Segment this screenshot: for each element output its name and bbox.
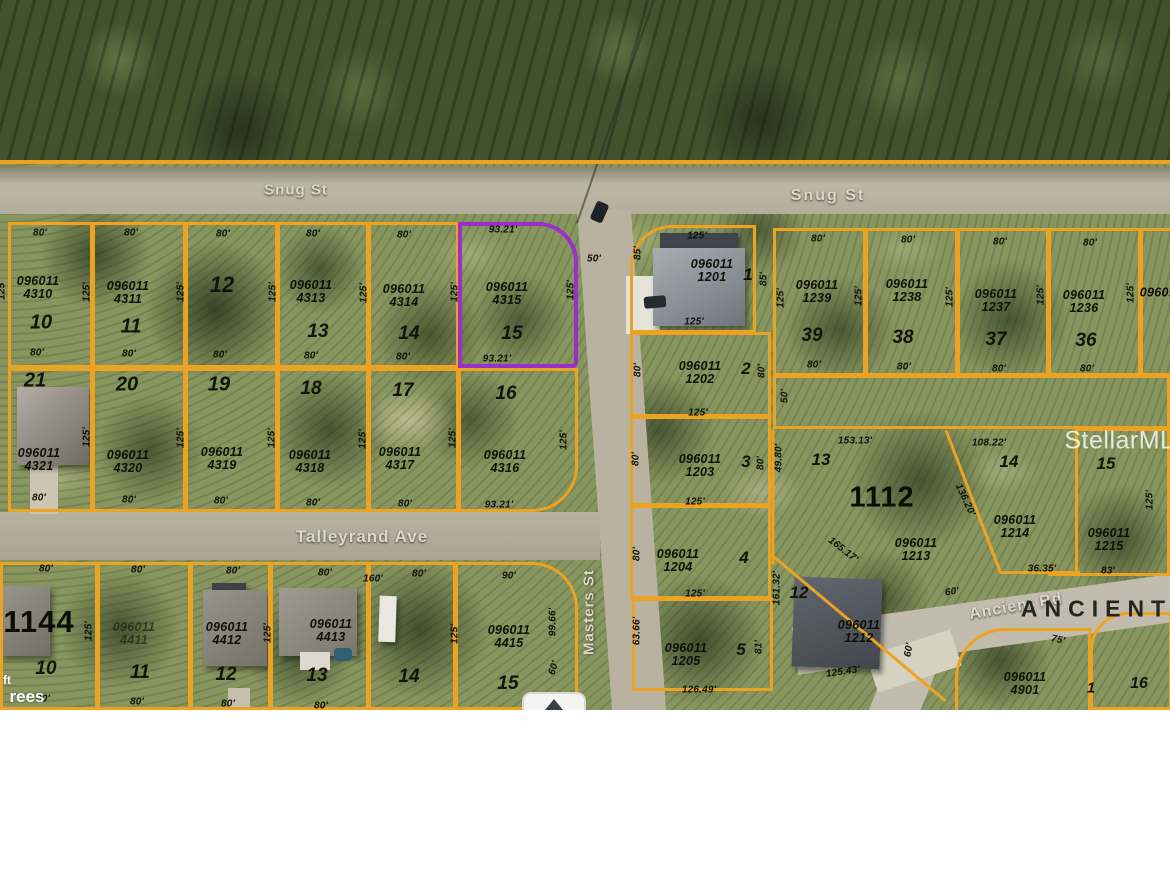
- dimension-label: 49.80': [774, 444, 785, 473]
- dimension-label: 80': [992, 364, 1006, 375]
- dimension-label: 93.21': [483, 354, 512, 365]
- parcel-id-label: 096011 1201: [691, 258, 734, 284]
- dimension-label: 80': [811, 234, 825, 245]
- dimension-label: 80': [216, 229, 230, 240]
- dimension-label: 80': [214, 496, 228, 507]
- lot-number-label: 11: [121, 316, 142, 339]
- lot-number-label: 15: [497, 673, 518, 695]
- lot-number-label: 15: [1097, 454, 1116, 474]
- dimension-label: 80': [39, 564, 53, 575]
- parcel-id-label: 096011 4315: [486, 281, 529, 307]
- dimension-label: 125': [0, 280, 8, 300]
- lot-number-label: 20: [116, 374, 138, 397]
- lot-number-label: 11: [130, 662, 150, 684]
- dimension-label: 125': [358, 429, 369, 449]
- street-name-label: Masters St: [581, 569, 598, 655]
- map-marker-icon: [522, 692, 586, 710]
- lot-number-label: 19: [208, 374, 230, 397]
- parcel-id-label: 096011 1213: [895, 537, 938, 563]
- parcel-id-label: 096011 1202: [679, 360, 722, 386]
- dimension-label: 125': [84, 621, 95, 641]
- dimension-label: 80': [130, 697, 144, 708]
- parcel-boundary: [630, 505, 771, 599]
- dimension-label: 93.21': [489, 225, 518, 236]
- lot-number-label: 13: [306, 665, 327, 687]
- parcel-id-label: 096011 1237: [975, 288, 1018, 314]
- clipped-edge-label: rees: [10, 687, 45, 707]
- lot-number-label: 16: [495, 383, 516, 405]
- dimension-label: 80': [756, 456, 767, 470]
- dimension-label: 125': [1126, 283, 1137, 303]
- dimension-label: 80': [30, 348, 44, 359]
- parcel-id-label: 096011 4321: [18, 447, 61, 473]
- parcel-id-label: 096011 1239: [796, 279, 839, 305]
- dimension-label: 80': [807, 360, 821, 371]
- parcel-id-label: 096011 4415: [488, 624, 531, 650]
- dimension-label: 80': [757, 364, 768, 378]
- lot-number-label: 13: [812, 450, 831, 470]
- stellar-mls-watermark: StellarMLS: [1064, 427, 1170, 456]
- parcel-id-label: 096011 4413: [310, 618, 353, 644]
- dimension-label: 80': [897, 362, 911, 373]
- parcel-id-label: 096011 1236: [1063, 289, 1106, 315]
- mls-map-screenshot: 096011 4310096011 4311096011 4313096011 …: [0, 0, 1170, 877]
- dimension-label: 125': [450, 282, 461, 302]
- dimension-label: 161.32': [772, 571, 783, 605]
- dimension-label: 125': [685, 589, 705, 600]
- dimension-label: 90': [502, 571, 516, 582]
- dimension-label: 50': [780, 389, 791, 403]
- parcel-id-label: 096011 4901: [1004, 671, 1047, 697]
- dimension-label: 80': [633, 363, 644, 377]
- dimension-label: 80': [226, 566, 240, 577]
- street-name-label: Snug St: [264, 182, 328, 199]
- lot-number-label: 16: [1130, 675, 1148, 693]
- dimension-label: 125': [685, 497, 705, 508]
- dimension-label: 80': [221, 699, 235, 710]
- dimension-label: 125': [263, 623, 274, 643]
- boundary-line: [0, 160, 1170, 164]
- lot-number-label: 15: [501, 323, 522, 345]
- parcel-id-label: 096011 1204: [657, 548, 700, 574]
- clipped-edge-label: ft: [3, 673, 11, 687]
- lot-number-label: 2: [741, 359, 750, 379]
- lot-number-label: 12: [790, 583, 809, 603]
- parcel-id-label: 096011 4320: [107, 449, 150, 475]
- dimension-label: 125': [359, 283, 370, 303]
- parcel-id-label: 096011 4319: [201, 446, 244, 472]
- parcel-id-label: 096011 1238: [886, 278, 929, 304]
- dimension-label: 125': [176, 428, 187, 448]
- dimension-label: 80': [314, 701, 328, 711]
- parcel-boundary: [185, 368, 278, 512]
- lot-number-label: 17: [392, 380, 413, 402]
- parcel-id-label: 096011 4317: [379, 446, 422, 472]
- parcel-id-label: 096011 4314: [383, 283, 426, 309]
- lot-number-label: 10: [30, 312, 52, 335]
- parcel-id-label: 096011 4313: [290, 279, 333, 305]
- dimension-label: 125': [688, 408, 708, 419]
- dimension-label: 36.35': [1028, 564, 1057, 575]
- lot-number-label: 38: [892, 327, 913, 349]
- dimension-label: 125': [684, 317, 704, 328]
- lot-number-label: 39: [801, 325, 822, 347]
- tree-band: [0, 0, 1170, 164]
- dimension-label: 80': [1080, 364, 1094, 375]
- parcel-id-label: 096011 1214: [994, 514, 1037, 540]
- lot-number-label: 1: [1087, 680, 1095, 697]
- dimension-label: 125': [945, 287, 956, 307]
- boundary-line: [945, 430, 1003, 574]
- marker-arrow-icon: [545, 699, 563, 710]
- dimension-label: 125': [776, 288, 787, 308]
- aerial-parcel-map: 096011 4310096011 4311096011 4313096011 …: [0, 0, 1170, 710]
- dimension-label: 80': [396, 352, 410, 363]
- dimension-label: 80': [122, 349, 136, 360]
- dimension-label: 125': [176, 282, 187, 302]
- lot-number-label: 14: [398, 666, 419, 688]
- dimension-label: 125': [854, 286, 865, 306]
- parcel-boundary: [773, 375, 1170, 429]
- lot-number-label: 36: [1075, 330, 1096, 352]
- dimension-label: 80': [632, 547, 643, 561]
- dimension-label: 80': [33, 228, 47, 239]
- parcel-boundary: [92, 368, 186, 512]
- dimension-label: 125': [1036, 285, 1047, 305]
- lot-number-label: 3: [741, 452, 750, 472]
- dimension-label: 160': [363, 574, 383, 585]
- dimension-label: 125': [566, 280, 577, 300]
- dimension-label: 81': [754, 640, 765, 654]
- parcel-id-label: 096011 4311: [107, 280, 150, 306]
- dimension-label: 80': [213, 350, 227, 361]
- dimension-label: 125': [82, 427, 93, 447]
- dimension-label: 63.66': [632, 617, 643, 646]
- dimension-label: 108.22': [972, 438, 1006, 449]
- dimension-label: 60': [944, 586, 960, 599]
- dimension-label: 85': [759, 272, 770, 286]
- dimension-label: 80': [993, 237, 1007, 248]
- parcel-boundary: [1140, 228, 1170, 376]
- lot-number-label: 13: [307, 321, 328, 343]
- block-number-label: 1144: [3, 604, 74, 640]
- parcel-boundary: [277, 368, 369, 512]
- parcel-boundary: [8, 368, 93, 512]
- dimension-label: 126.49': [682, 685, 716, 696]
- parcel-id-label: 096011 4316: [484, 449, 527, 475]
- dimension-label: 125': [82, 282, 93, 302]
- lot-number-label: 14: [398, 323, 419, 345]
- parcel-id-label: 096011 4310: [17, 275, 60, 301]
- dimension-label: 80': [397, 230, 411, 241]
- lot-number-label: 21: [24, 370, 46, 393]
- lot-number-label: 37: [985, 329, 1006, 351]
- dimension-label: 80': [412, 569, 426, 580]
- parcel-id-label: 096011 1203: [679, 453, 722, 479]
- dimension-label: 125': [267, 428, 278, 448]
- dimension-label: 80': [306, 498, 320, 509]
- lot-number-label: 12: [210, 272, 234, 298]
- parcel-id-label: 096011: [1140, 287, 1170, 300]
- parcel-id-label: 096011 4318: [289, 449, 332, 475]
- lot-number-label: 4: [739, 548, 748, 568]
- dimension-label: 83': [1101, 566, 1115, 577]
- lot-number-label: 18: [300, 378, 321, 400]
- dimension-label: 125': [559, 430, 570, 450]
- street-name-label: ANCIENT R: [1021, 596, 1170, 623]
- dimension-label: 80': [1083, 238, 1097, 249]
- dimension-label: 153.13': [838, 436, 872, 447]
- dimension-label: 80': [32, 493, 46, 504]
- dimension-label: 50': [587, 254, 601, 265]
- tree-shadow-on-road: [0, 167, 1170, 185]
- dimension-label: 125': [687, 231, 707, 242]
- parcel-boundary: [955, 628, 1091, 710]
- dimension-label: 93.21': [485, 500, 514, 511]
- dimension-label: 125': [448, 428, 459, 448]
- lot-number-label: 5: [736, 640, 745, 660]
- dimension-label: 80': [131, 565, 145, 576]
- dimension-label: 125': [268, 282, 279, 302]
- parcel-id-label: 096011 4411: [113, 621, 156, 647]
- parcel-id-label: 096011 1215: [1088, 527, 1131, 553]
- dimension-label: 80': [122, 495, 136, 506]
- dimension-label: 80': [631, 452, 642, 466]
- dimension-label: 80': [318, 568, 332, 579]
- street-name-label: Talleyrand Ave: [296, 527, 428, 547]
- parcel-id-label: 096011 1212: [838, 619, 881, 645]
- lot-number-label: 10: [35, 658, 56, 680]
- parcel-id-label: 096011 1205: [665, 642, 708, 668]
- dimension-label: 80': [124, 228, 138, 239]
- lot-number-label: 12: [215, 664, 236, 686]
- parcel-id-label: 096011 4412: [206, 621, 249, 647]
- lot-number-label: 1: [743, 265, 752, 285]
- street-name-label: Snug St: [791, 187, 865, 205]
- dimension-label: 165.17': [826, 535, 860, 565]
- dimension-label: 99.66': [548, 608, 559, 637]
- dimension-label: 80': [304, 351, 318, 362]
- parcel-boundary: [1090, 612, 1170, 710]
- lot-number-label: 14: [1000, 452, 1019, 472]
- dimension-label: 85': [633, 246, 644, 260]
- dimension-label: 80': [901, 235, 915, 246]
- dimension-label: 125': [1145, 490, 1156, 510]
- dimension-label: 125': [450, 624, 461, 644]
- dimension-label: 80': [398, 499, 412, 510]
- dimension-label: 80': [306, 229, 320, 240]
- block-number-label: 1112: [849, 482, 914, 515]
